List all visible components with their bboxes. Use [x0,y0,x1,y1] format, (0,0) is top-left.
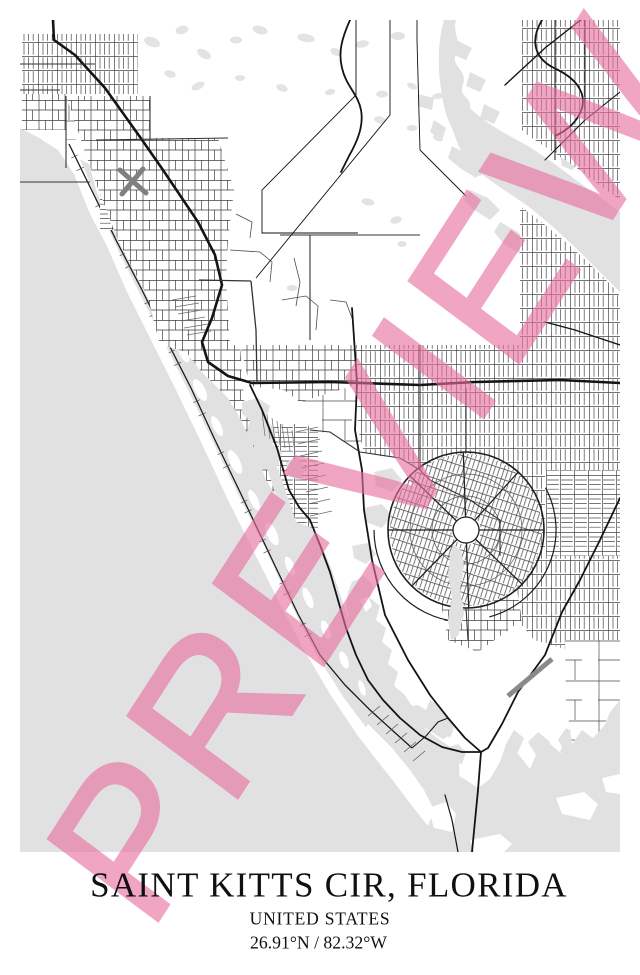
svg-text:26.91°N / 82.32°W: 26.91°N / 82.32°W [250,933,387,953]
svg-text:SAINT KITTS CIR, FLORIDA: SAINT KITTS CIR, FLORIDA [90,866,568,905]
svg-text:UNITED STATES: UNITED STATES [250,909,391,929]
